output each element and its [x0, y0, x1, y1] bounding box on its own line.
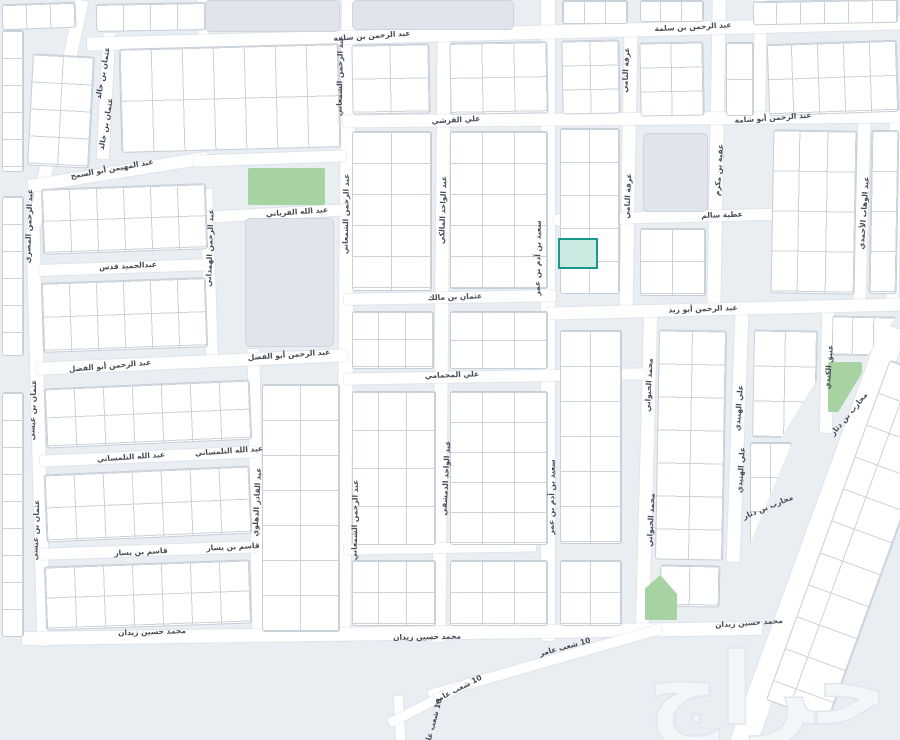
street-label: سعيد بن آدم بن عمر: [548, 459, 557, 534]
street-label: عبد الرحمن الهمداني: [205, 209, 215, 287]
street-label: عرفة النامي: [623, 173, 633, 219]
street-label: محمد حسين زيدان: [393, 633, 461, 642]
street-label: عبد الرحمن المصري: [24, 189, 34, 264]
street-label: عقبة بن مكرم: [713, 144, 724, 196]
street-label: عثمان بن عيسى: [31, 500, 41, 561]
street-label: عبد المهيمن أبو السمح: [70, 158, 154, 180]
labels-layer: عبد الرحمن بن سلمةعبد الرحمن بن سلمةعلي …: [0, 0, 900, 740]
street-label: عبد الرحمن الشمعاني: [351, 480, 360, 561]
street-label: عبد الرحمن الشمعاني: [336, 36, 345, 117]
street-label: محمد حسين زيدان: [715, 617, 783, 629]
street-label: عتيق الكندي: [824, 344, 835, 389]
street-label: عبد القادر الدهلوي: [251, 467, 262, 536]
street-label: عثمان بن مالك: [428, 292, 483, 301]
street-label: عبد الله التلمساني: [195, 445, 263, 457]
street-label: عبد الوهاب الأحمدي: [858, 176, 871, 250]
street-label: عبد الواحد المالكي: [438, 176, 448, 244]
street-label: عبد الواحد الدمشقي: [440, 440, 451, 515]
street-label: عبد الرحمن الشمعاني: [342, 174, 351, 255]
street-label: 10 شعب عامر: [433, 674, 483, 705]
street-label: عبد الرحمن أبو شامة: [734, 112, 811, 125]
street-label: 10 شعب عامر: [539, 637, 592, 658]
street-label: عبد الرحمن أبو زيد: [668, 304, 737, 314]
street-label: عبد الله الفرياني: [266, 206, 329, 218]
street-label: سعيد بن آدم بن عمر: [534, 220, 543, 295]
map-canvas[interactable]: عبد الرحمن بن سلمةعبد الرحمن بن سلمةعلي …: [0, 0, 900, 740]
street-label: محمد الحبواني: [644, 358, 654, 412]
street-label: عرفة النامي: [621, 47, 631, 93]
street-label: عبد الرحمن بن سلمة: [654, 21, 731, 33]
street-label: عبد الرحمن أبو الفضل: [69, 359, 152, 374]
highlighted-parcel[interactable]: [558, 238, 598, 269]
street-label: علي الهنيدي: [734, 385, 745, 431]
street-label: علي المحمامي: [425, 370, 480, 379]
street-label: محارب بن دثار: [742, 494, 794, 521]
street-label: قاسم بن يسار: [114, 547, 168, 557]
street-label: محارب بن دثار: [829, 391, 869, 437]
street-label: عبد الرحمن أبو الفضل: [248, 348, 331, 361]
street-label: علي الهنيدي: [736, 447, 747, 493]
street-label: محمد حسين زيدان: [118, 627, 186, 637]
street-label: عطية سالم: [701, 211, 743, 220]
street-label: عثمان بن خالد: [98, 97, 115, 150]
street-label: عبد الرحمن بن سلمة: [333, 30, 411, 43]
street-label: 10 شعب عامر: [423, 698, 444, 740]
street-label: عثمان بن خالد: [95, 46, 112, 99]
street-label: محمد الحبواني: [646, 493, 656, 547]
street-label: علي القرشي: [431, 115, 480, 125]
street-label: عثمان بن عيسى: [28, 380, 38, 441]
street-label: عبد الله التلمساني: [97, 451, 165, 463]
street-label: عبدالحميد قدس: [99, 261, 157, 272]
street-label: قاسم بن يسار: [206, 542, 260, 552]
